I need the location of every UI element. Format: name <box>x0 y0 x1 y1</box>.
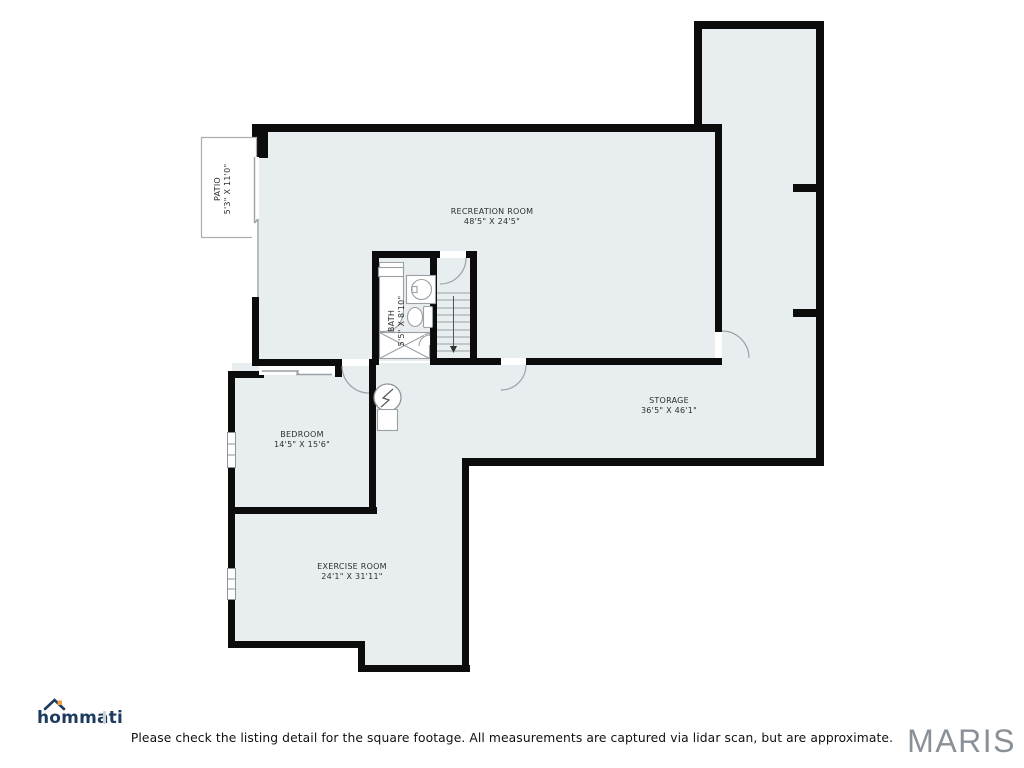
room-dims: 48'5" X 24'5" <box>451 217 534 227</box>
room-dims: 14'5" X 15'6" <box>274 440 330 450</box>
window <box>228 569 236 600</box>
room-label-storage: STORAGE 36'5" X 46'1" <box>641 396 697 416</box>
electrical-panel-icon <box>374 384 401 411</box>
room-dims: 5'3" X 11'0" <box>223 164 233 215</box>
room-label-recreation: RECREATION ROOM 48'5" X 24'5" <box>451 207 534 227</box>
plan-linework <box>0 0 1024 768</box>
hommati-tm-mark <box>103 711 106 724</box>
toilet-icon <box>408 307 433 328</box>
door-recreation-to-storage-south <box>501 358 526 390</box>
door-stair <box>440 251 466 284</box>
maris-logo-text: MARIS <box>907 723 1016 760</box>
room-dims: 24'1" X 31'11" <box>317 572 387 582</box>
room-dims: 36'5" X 46'1" <box>641 406 697 416</box>
window <box>228 433 236 468</box>
hommati-logo: hommati <box>37 697 121 733</box>
room-name: EXERCISE ROOM <box>317 562 387 572</box>
room-label-bath: BATH 5'5" X 8'10" <box>387 296 407 347</box>
room-label-patio: PATIO 5'3" X 11'0" <box>213 164 233 215</box>
disclaimer-text: Please check the listing detail for the … <box>0 731 1024 745</box>
room-name: STORAGE <box>641 396 697 406</box>
water-heater-icon <box>378 410 398 431</box>
room-name: BATH <box>387 296 397 347</box>
closet-sliding-door <box>259 366 335 375</box>
sliding-door <box>252 157 259 297</box>
room-name: BEDROOM <box>274 430 330 440</box>
sink-icon <box>407 276 436 304</box>
room-label-exercise: EXERCISE ROOM 24'1" X 31'11" <box>317 562 387 582</box>
room-name: PATIO <box>213 164 223 215</box>
door-bedroom <box>342 359 369 393</box>
hommati-logo-text: hommati <box>37 708 123 728</box>
door-recreation-to-storage-east <box>715 331 749 358</box>
room-dims: 5'5" X 8'10" <box>397 296 407 347</box>
room-name: RECREATION ROOM <box>451 207 534 217</box>
floor-plan-page: RECREATION ROOM 48'5" X 24'5" PATIO 5'3"… <box>0 0 1024 768</box>
room-label-bedroom: BEDROOM 14'5" X 15'6" <box>274 430 330 450</box>
